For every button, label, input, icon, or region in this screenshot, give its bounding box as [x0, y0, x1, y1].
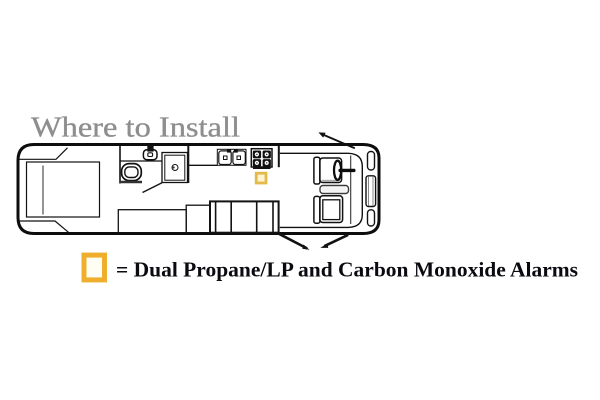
svg-text:Where to Install: Where to Install	[31, 111, 240, 143]
svg-text:= Dual Propane/LP and Carbon M: = Dual Propane/LP and Carbon Monoxide Al…	[116, 258, 578, 282]
